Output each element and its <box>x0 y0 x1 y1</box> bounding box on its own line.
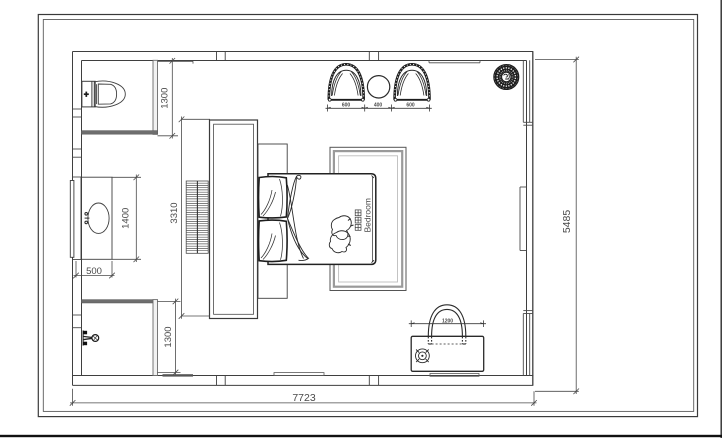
svg-text:Bedroom: Bedroom <box>363 198 373 233</box>
svg-text:600: 600 <box>406 102 415 108</box>
svg-text:1300: 1300 <box>160 88 171 109</box>
svg-text:1200: 1200 <box>442 318 453 324</box>
svg-text:7723: 7723 <box>292 392 316 404</box>
svg-text:400: 400 <box>374 102 383 108</box>
svg-text:500: 500 <box>86 266 102 277</box>
svg-text:1400: 1400 <box>121 208 132 229</box>
svg-text:5485: 5485 <box>561 210 573 234</box>
svg-text:1300: 1300 <box>163 326 174 347</box>
svg-text:3310: 3310 <box>169 202 180 223</box>
svg-text:600: 600 <box>342 102 351 108</box>
